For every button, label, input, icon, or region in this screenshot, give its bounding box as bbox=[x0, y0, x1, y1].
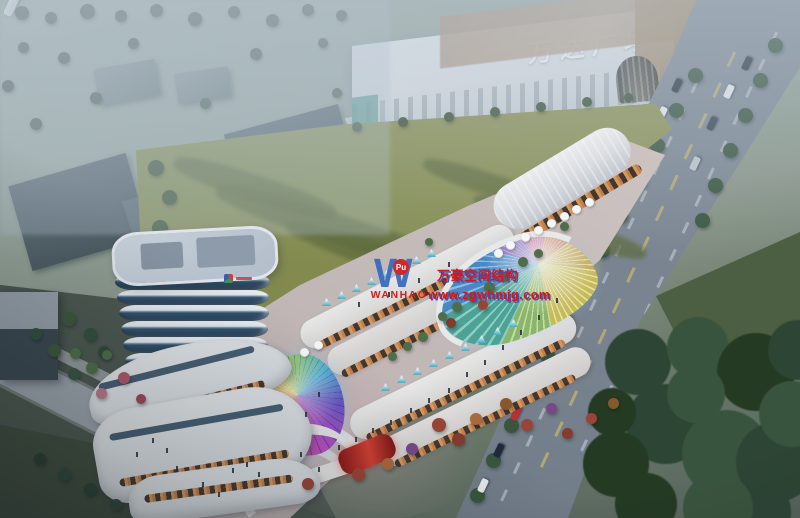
terrace-parasol bbox=[585, 198, 594, 207]
terrace-parasol bbox=[521, 233, 530, 242]
tree-mass bbox=[588, 388, 636, 436]
person-dot bbox=[448, 262, 450, 267]
person-dot bbox=[300, 452, 302, 457]
market-stall-tent bbox=[493, 327, 502, 335]
terrace-parasol bbox=[506, 241, 515, 250]
autumn-tree bbox=[118, 372, 130, 384]
person-dot bbox=[355, 437, 357, 442]
roof-garden-shrub bbox=[500, 272, 510, 282]
autumn-tree bbox=[96, 388, 107, 399]
autumn-tree bbox=[500, 398, 512, 410]
terrace-parasol bbox=[494, 249, 503, 258]
market-stall-tent bbox=[367, 277, 376, 285]
person-dot bbox=[410, 408, 412, 413]
roof-garden-shrub bbox=[452, 302, 462, 312]
autumn-tree bbox=[136, 394, 146, 404]
market-stall-tent bbox=[477, 335, 486, 343]
person-dot bbox=[466, 372, 468, 377]
green-tree bbox=[48, 344, 61, 357]
roof-garden-shrub bbox=[86, 362, 98, 374]
autumn-tree bbox=[478, 300, 488, 310]
market-stall-tent bbox=[382, 270, 391, 278]
person-dot bbox=[232, 468, 234, 473]
roof-garden-shrub bbox=[468, 292, 478, 302]
green-tree bbox=[68, 368, 80, 380]
autumn-tree bbox=[562, 428, 573, 439]
green-tree bbox=[58, 468, 71, 481]
market-stall-tent bbox=[322, 298, 331, 306]
market-stall-tent bbox=[509, 319, 518, 327]
terrace-parasol bbox=[547, 219, 556, 228]
roof-garden-shrub bbox=[518, 257, 528, 267]
autumn-tree bbox=[446, 318, 456, 328]
person-dot bbox=[502, 345, 504, 350]
person-dot bbox=[484, 360, 486, 365]
aerial-rendering-scene: 万达广场 bbox=[0, 0, 800, 518]
roof-garden-shrub bbox=[425, 238, 433, 246]
market-stall-tent bbox=[427, 249, 436, 257]
person-dot bbox=[246, 462, 248, 467]
person-dot bbox=[305, 412, 307, 417]
person-dot bbox=[388, 292, 390, 297]
person-dot bbox=[258, 472, 260, 477]
person-dot bbox=[418, 278, 420, 283]
roof-garden-shrub bbox=[560, 222, 569, 231]
market-stall-tent bbox=[429, 359, 438, 367]
person-dot bbox=[318, 467, 320, 472]
terrace-parasol bbox=[560, 212, 569, 221]
person-dot bbox=[390, 420, 392, 425]
green-tree bbox=[30, 328, 42, 340]
autumn-tree bbox=[546, 403, 557, 414]
market-stall-tent bbox=[397, 375, 406, 383]
person-dot bbox=[152, 438, 154, 443]
roof-garden-shrub bbox=[102, 350, 112, 360]
autumn-tree bbox=[432, 418, 446, 432]
market-stall-tent bbox=[381, 383, 390, 391]
autumn-tree bbox=[352, 468, 365, 481]
market-stall-tent bbox=[397, 263, 406, 271]
roof-garden-shrub bbox=[534, 249, 543, 258]
market-stall-tent bbox=[461, 343, 470, 351]
person-dot bbox=[556, 298, 558, 303]
person-dot bbox=[448, 388, 450, 393]
market-stall-tent bbox=[412, 256, 421, 264]
person-dot bbox=[520, 330, 522, 335]
terrace-parasol bbox=[572, 205, 581, 214]
person-dot bbox=[338, 445, 340, 450]
market-stall-tent bbox=[413, 367, 422, 375]
person-dot bbox=[428, 398, 430, 403]
market-stall-tent bbox=[337, 291, 346, 299]
terrace-parasol bbox=[314, 341, 323, 350]
autumn-tree bbox=[302, 478, 314, 490]
green-tree bbox=[110, 499, 122, 511]
autumn-tree bbox=[608, 398, 619, 409]
green-tree bbox=[84, 328, 97, 341]
tree-mass bbox=[667, 365, 725, 423]
autumn-tree bbox=[406, 443, 418, 455]
person-dot bbox=[538, 315, 540, 320]
terrace-parasol bbox=[534, 226, 543, 235]
autumn-tree bbox=[382, 458, 394, 470]
green-tree bbox=[84, 483, 97, 496]
person-dot bbox=[136, 452, 138, 457]
foreground-scenery bbox=[0, 0, 800, 518]
roof-garden-shrub bbox=[403, 342, 412, 351]
person-dot bbox=[358, 302, 360, 307]
roof-garden-shrub bbox=[438, 312, 447, 321]
person-dot bbox=[166, 448, 168, 453]
green-tree bbox=[62, 312, 76, 326]
market-stall-tent bbox=[445, 351, 454, 359]
person-dot bbox=[318, 392, 320, 397]
person-dot bbox=[202, 482, 204, 487]
autumn-tree bbox=[521, 419, 533, 431]
green-tree bbox=[34, 453, 46, 465]
roof-garden-shrub bbox=[484, 282, 495, 293]
roof-garden-shrub bbox=[418, 332, 428, 342]
autumn-tree bbox=[452, 433, 465, 446]
terrace-parasol bbox=[300, 348, 309, 357]
autumn-tree bbox=[470, 413, 482, 425]
person-dot bbox=[218, 492, 220, 497]
market-stall-tent bbox=[352, 284, 361, 292]
roof-garden-shrub bbox=[388, 352, 397, 361]
person-dot bbox=[372, 428, 374, 433]
roof-garden-shrub bbox=[70, 348, 81, 359]
person-dot bbox=[176, 466, 178, 471]
autumn-tree bbox=[586, 413, 597, 424]
